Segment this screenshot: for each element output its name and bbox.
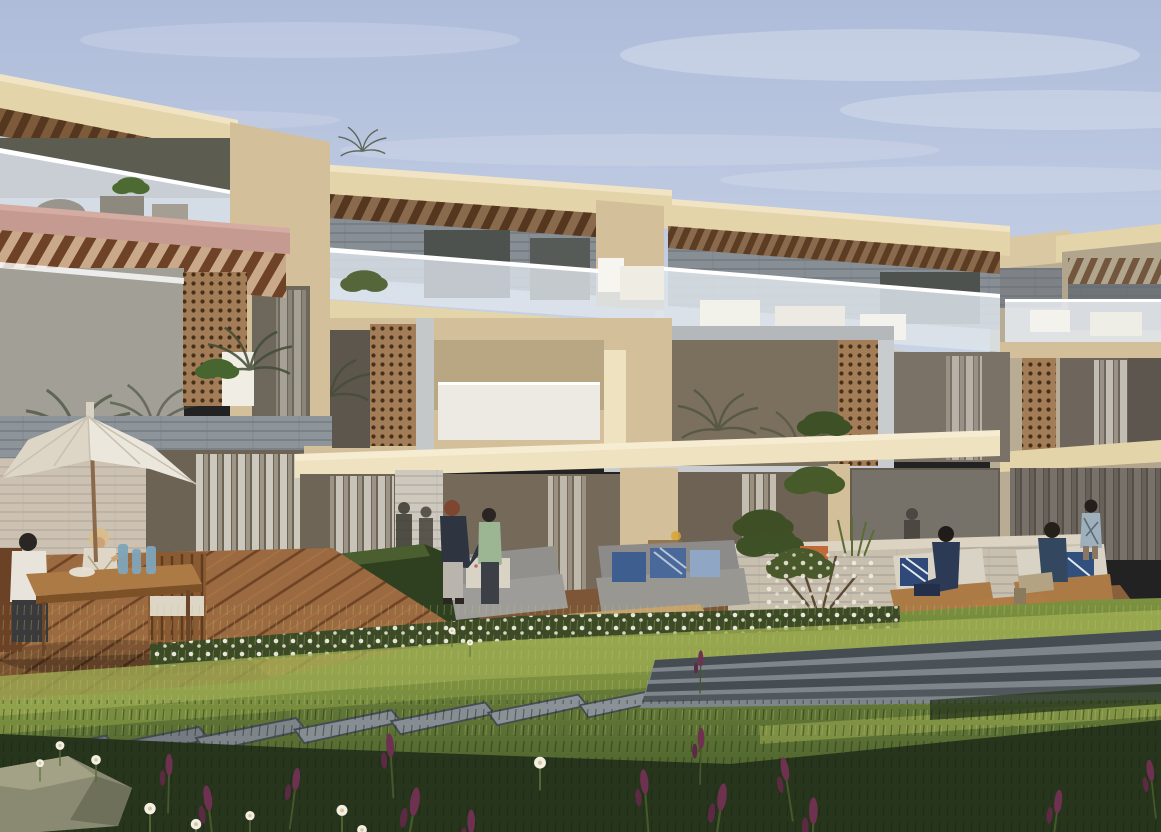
left-unit — [0, 74, 332, 596]
foreground-shadow-grass — [0, 684, 1161, 832]
far-right-units — [985, 224, 1161, 560]
scene-svg — [0, 0, 1161, 832]
standing-woman — [478, 508, 502, 604]
rendering-canvas — [0, 0, 1161, 832]
far-right-balcony — [1000, 299, 1161, 358]
